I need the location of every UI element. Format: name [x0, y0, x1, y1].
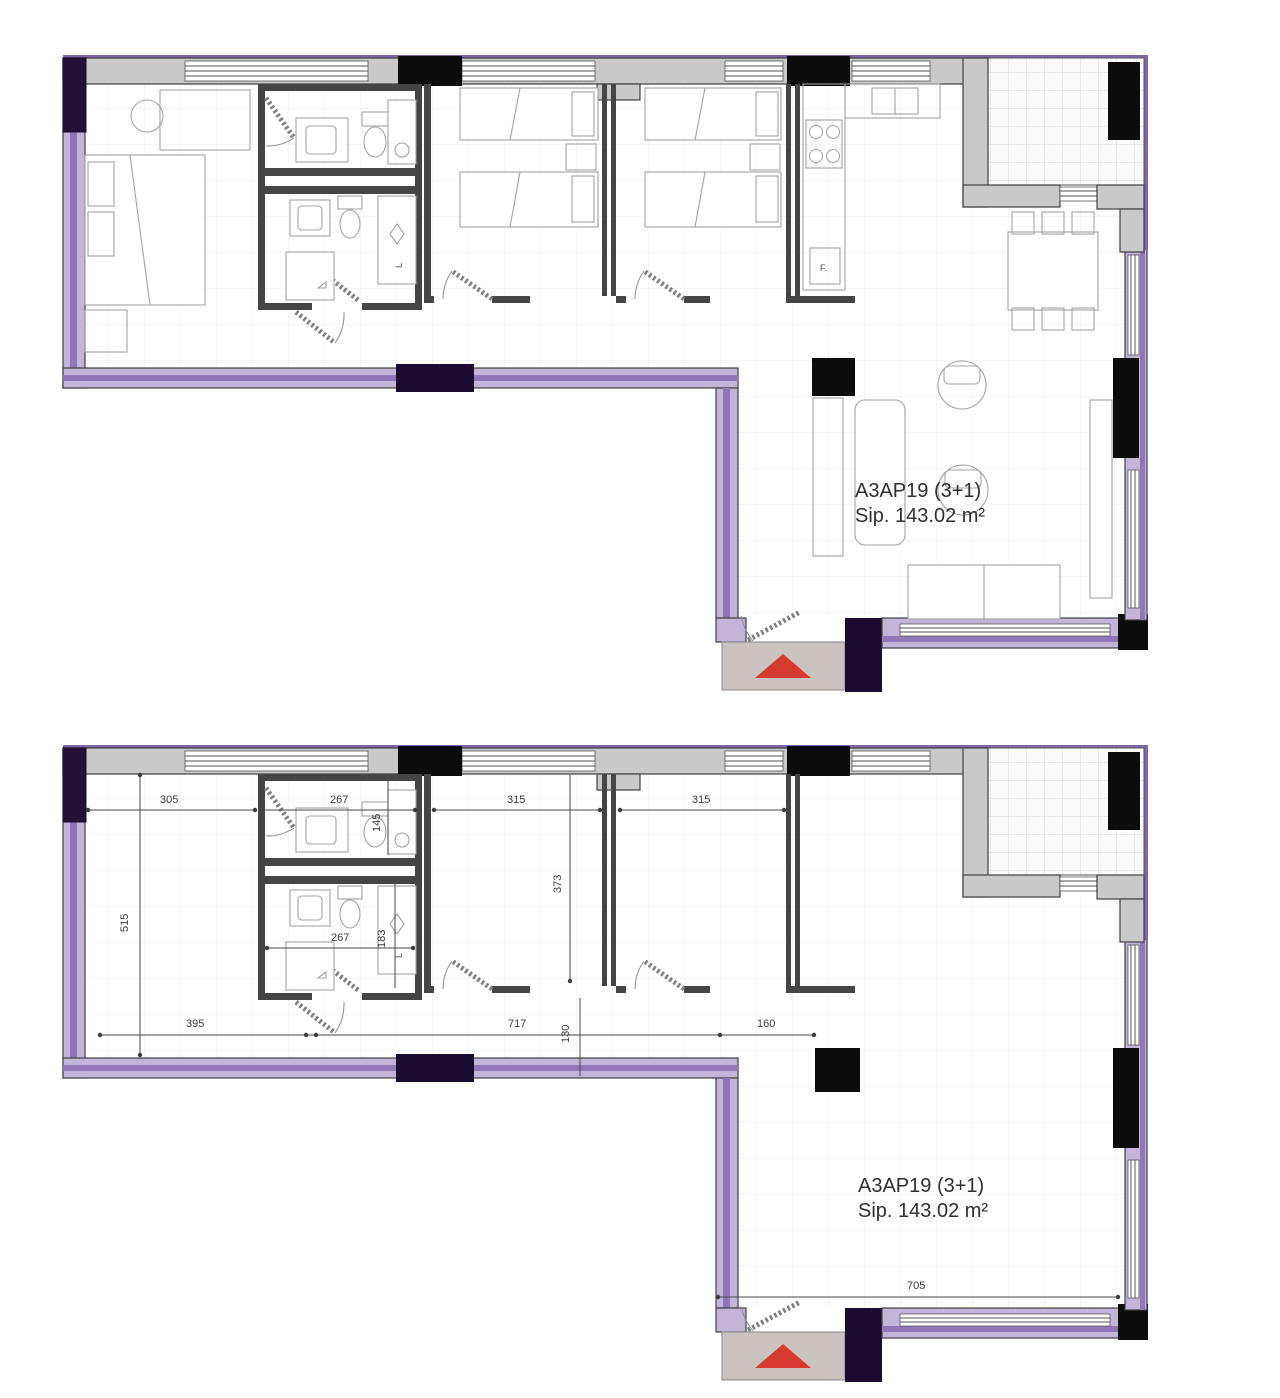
dim-bedroom3-width: 315: [692, 794, 710, 806]
single-bed: [645, 172, 781, 227]
dim-bath1-width: 267: [330, 794, 348, 806]
washer-label: L: [394, 263, 404, 268]
dim-bath2-depth: 183: [376, 930, 388, 948]
upper-floor-plan: F. A3A: [63, 55, 1148, 692]
dim-left-depth: 515: [119, 914, 131, 932]
structural-column: [815, 1048, 860, 1092]
floor-plan-drawing: F. A3A: [0, 0, 1280, 1398]
dim-column-offset: 160: [757, 1018, 775, 1030]
structural-column: [812, 358, 855, 396]
dining-table: [1008, 232, 1098, 310]
single-bed: [645, 88, 781, 140]
single-bed: [460, 172, 598, 227]
single-bed: [460, 88, 598, 140]
unit-area: Sip. 143.02 m²: [855, 505, 985, 527]
dim-corridor-width: 717: [508, 1018, 526, 1030]
tv-cabinet: [1090, 400, 1112, 598]
lower-floor-plan: 305 267 315 315 145 515 373 267 183 395 …: [63, 745, 1148, 1382]
dim-wall-offset: 130: [560, 1025, 572, 1043]
floor-plan-sheet: F. A3A: [0, 0, 1280, 1398]
lower-plan-shell: [63, 745, 1148, 1382]
dim-hall-width: 395: [186, 1018, 204, 1030]
dim-bath2-width: 267: [331, 932, 349, 944]
armchair-back: [944, 366, 980, 384]
fridge-label: F.: [820, 263, 827, 273]
unit-title: A3AP19 (3+1): [855, 480, 981, 502]
unit-title: A3AP19 (3+1): [858, 1175, 984, 1197]
dim-living-width: 705: [907, 1280, 925, 1292]
unit-area: Sip. 143.02 m²: [858, 1200, 988, 1222]
dim-bedroom1-width: 305: [160, 794, 178, 806]
dim-bedroom-depth: 373: [552, 875, 564, 893]
dim-bedroom2-width: 315: [507, 794, 525, 806]
washer-label: L: [394, 953, 404, 958]
double-bed: [85, 155, 205, 305]
dim-bath1-depth: 145: [371, 814, 383, 832]
